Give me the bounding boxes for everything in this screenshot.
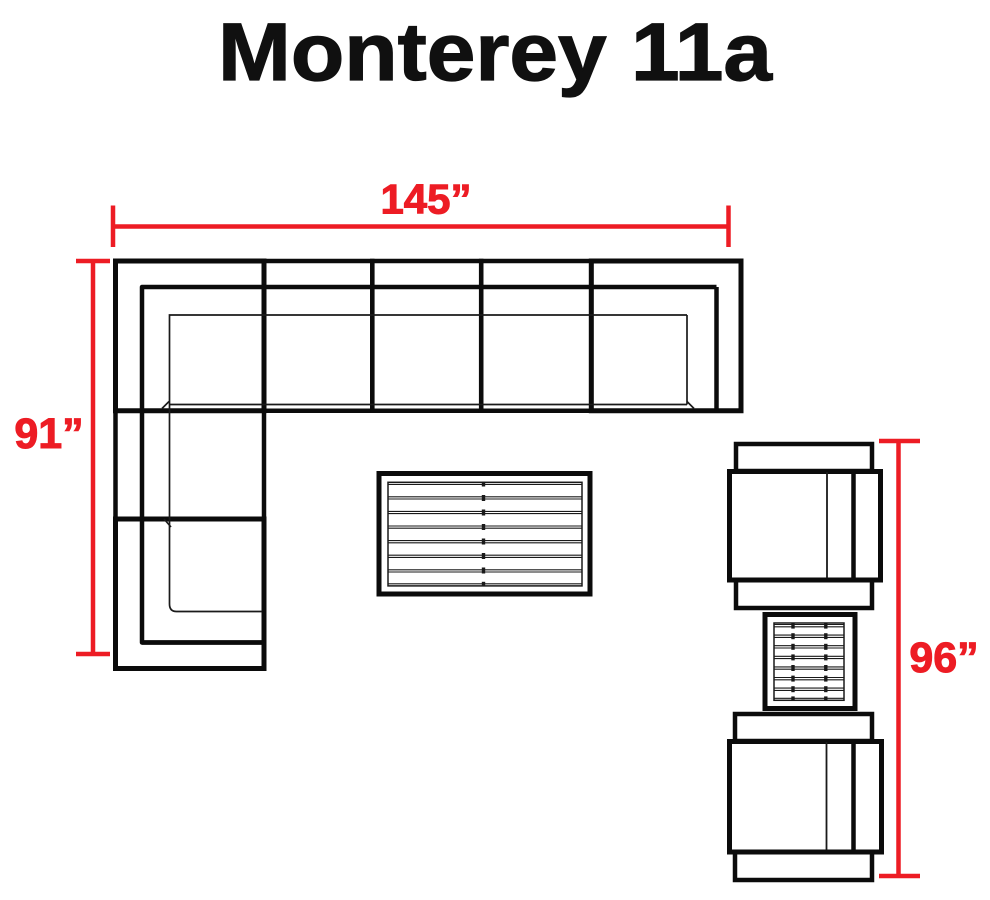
svg-text:Monterey 11a: Monterey 11a <box>218 7 773 98</box>
svg-text:91”: 91” <box>14 410 83 458</box>
svg-text:145”: 145” <box>380 176 471 223</box>
svg-text:96”: 96” <box>909 634 978 682</box>
